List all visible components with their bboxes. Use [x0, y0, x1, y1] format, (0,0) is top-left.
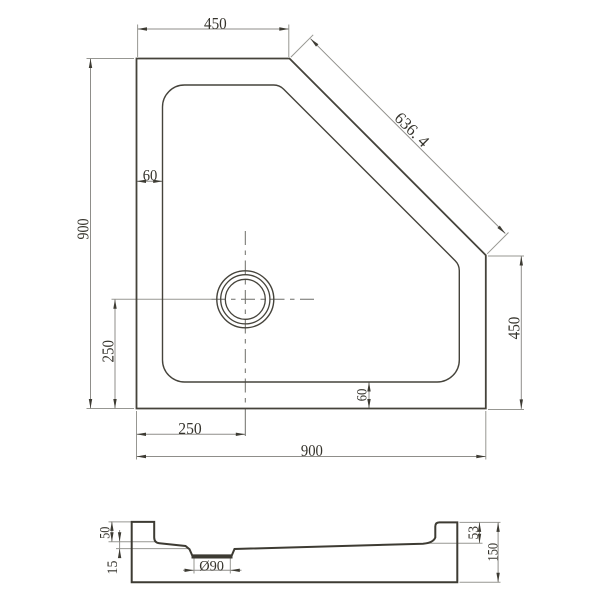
- svg-text:53: 53: [466, 526, 482, 540]
- svg-text:Ø90: Ø90: [199, 558, 224, 574]
- svg-text:900: 900: [301, 441, 323, 460]
- svg-text:450: 450: [204, 14, 227, 33]
- svg-text:50: 50: [98, 527, 114, 539]
- svg-text:450: 450: [505, 317, 524, 340]
- svg-text:250: 250: [99, 340, 118, 363]
- svg-text:15: 15: [105, 561, 121, 575]
- svg-text:150: 150: [486, 543, 502, 562]
- svg-text:900: 900: [74, 219, 93, 240]
- svg-text:250: 250: [178, 419, 201, 438]
- svg-text:60: 60: [355, 389, 371, 402]
- svg-text:60: 60: [143, 167, 158, 184]
